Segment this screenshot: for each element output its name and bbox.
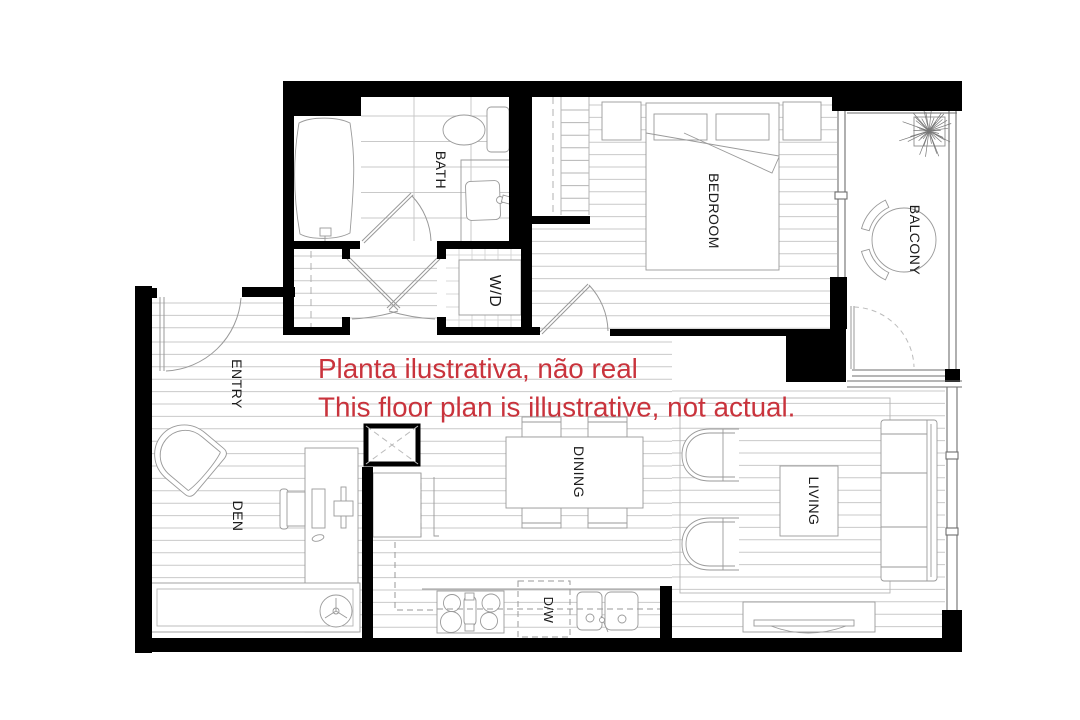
svg-text:Planta ilustrativa, não real: Planta ilustrativa, não real xyxy=(318,353,638,384)
svg-text:BATH: BATH xyxy=(433,151,449,189)
svg-text:W/D: W/D xyxy=(486,275,503,308)
svg-text:D/W: D/W xyxy=(541,597,556,624)
svg-text:BALCONY: BALCONY xyxy=(907,205,923,276)
svg-text:DEN: DEN xyxy=(230,500,246,531)
svg-text:LIVING: LIVING xyxy=(806,477,822,526)
svg-text:BEDROOM: BEDROOM xyxy=(706,173,722,249)
svg-text:DINING: DINING xyxy=(571,446,587,498)
svg-text:This floor plan is illustrativ: This floor plan is illustrative, not act… xyxy=(318,392,795,423)
svg-text:ENTRY: ENTRY xyxy=(229,359,245,409)
